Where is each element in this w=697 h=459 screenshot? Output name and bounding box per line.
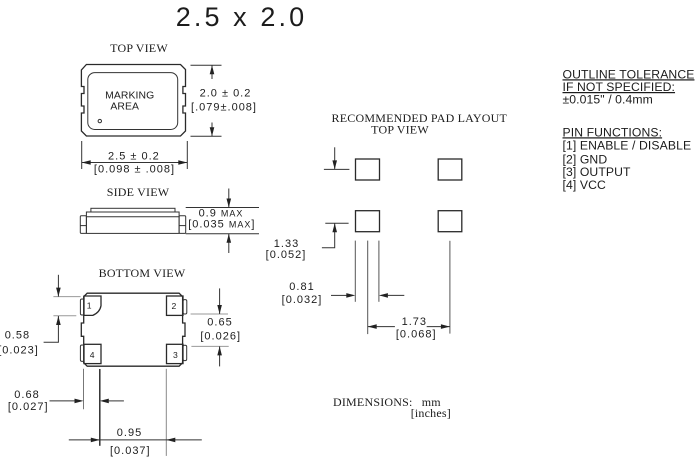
svg-text:[0.035 MAX]: [0.035 MAX] <box>188 218 255 230</box>
svg-text:4: 4 <box>90 350 95 360</box>
svg-text:TOP VIEW: TOP VIEW <box>371 123 429 137</box>
svg-text:2.5 x 2.0: 2.5 x 2.0 <box>176 2 307 32</box>
svg-text:TOP VIEW: TOP VIEW <box>110 41 168 55</box>
svg-text:1: 1 <box>87 301 92 311</box>
svg-text:[.079±.008]: [.079±.008] <box>191 102 257 114</box>
svg-text:[1] ENABLE / DISABLE: [1] ENABLE / DISABLE <box>563 138 692 152</box>
svg-text:MARKING: MARKING <box>105 91 154 102</box>
svg-text:2.5 ± 0.2: 2.5 ± 0.2 <box>108 150 160 162</box>
svg-text:0.81: 0.81 <box>289 281 314 293</box>
svg-text:[0.068]: [0.068] <box>396 329 437 341</box>
svg-text:DIMENSIONS:: DIMENSIONS: <box>333 395 413 409</box>
svg-text:BOTTOM VIEW: BOTTOM VIEW <box>99 266 186 280</box>
svg-text:PIN FUNCTIONS:: PIN FUNCTIONS: <box>563 125 663 139</box>
svg-text:SIDE VIEW: SIDE VIEW <box>107 185 170 199</box>
svg-text:[0.037]: [0.037] <box>110 445 151 457</box>
svg-text:0.65: 0.65 <box>207 317 232 329</box>
svg-text:[0.032]: [0.032] <box>282 294 323 306</box>
svg-text:AREA: AREA <box>110 101 139 112</box>
svg-text:[0.027]: [0.027] <box>8 401 49 413</box>
svg-text:[0.052]: [0.052] <box>266 249 307 261</box>
svg-text:1.73: 1.73 <box>402 316 427 328</box>
svg-text:[4] VCC: [4] VCC <box>563 178 606 192</box>
svg-text:[0.026]: [0.026] <box>200 331 241 343</box>
svg-text:±0.015" / 0.4mm: ±0.015" / 0.4mm <box>563 93 653 107</box>
svg-text:3: 3 <box>173 350 178 360</box>
svg-text:2: 2 <box>172 301 177 311</box>
svg-text:2.0 ± 0.2: 2.0 ± 0.2 <box>200 88 252 100</box>
svg-text:[0.023]: [0.023] <box>0 344 39 356</box>
svg-text:[3] OUTPUT: [3] OUTPUT <box>563 165 631 179</box>
svg-text:0.58: 0.58 <box>5 330 30 342</box>
svg-text:0.95: 0.95 <box>117 427 142 439</box>
svg-text:0.68: 0.68 <box>14 389 39 401</box>
svg-text:[inches]: [inches] <box>411 406 451 420</box>
svg-text:[0.098 ± .008]: [0.098 ± .008] <box>94 164 175 176</box>
